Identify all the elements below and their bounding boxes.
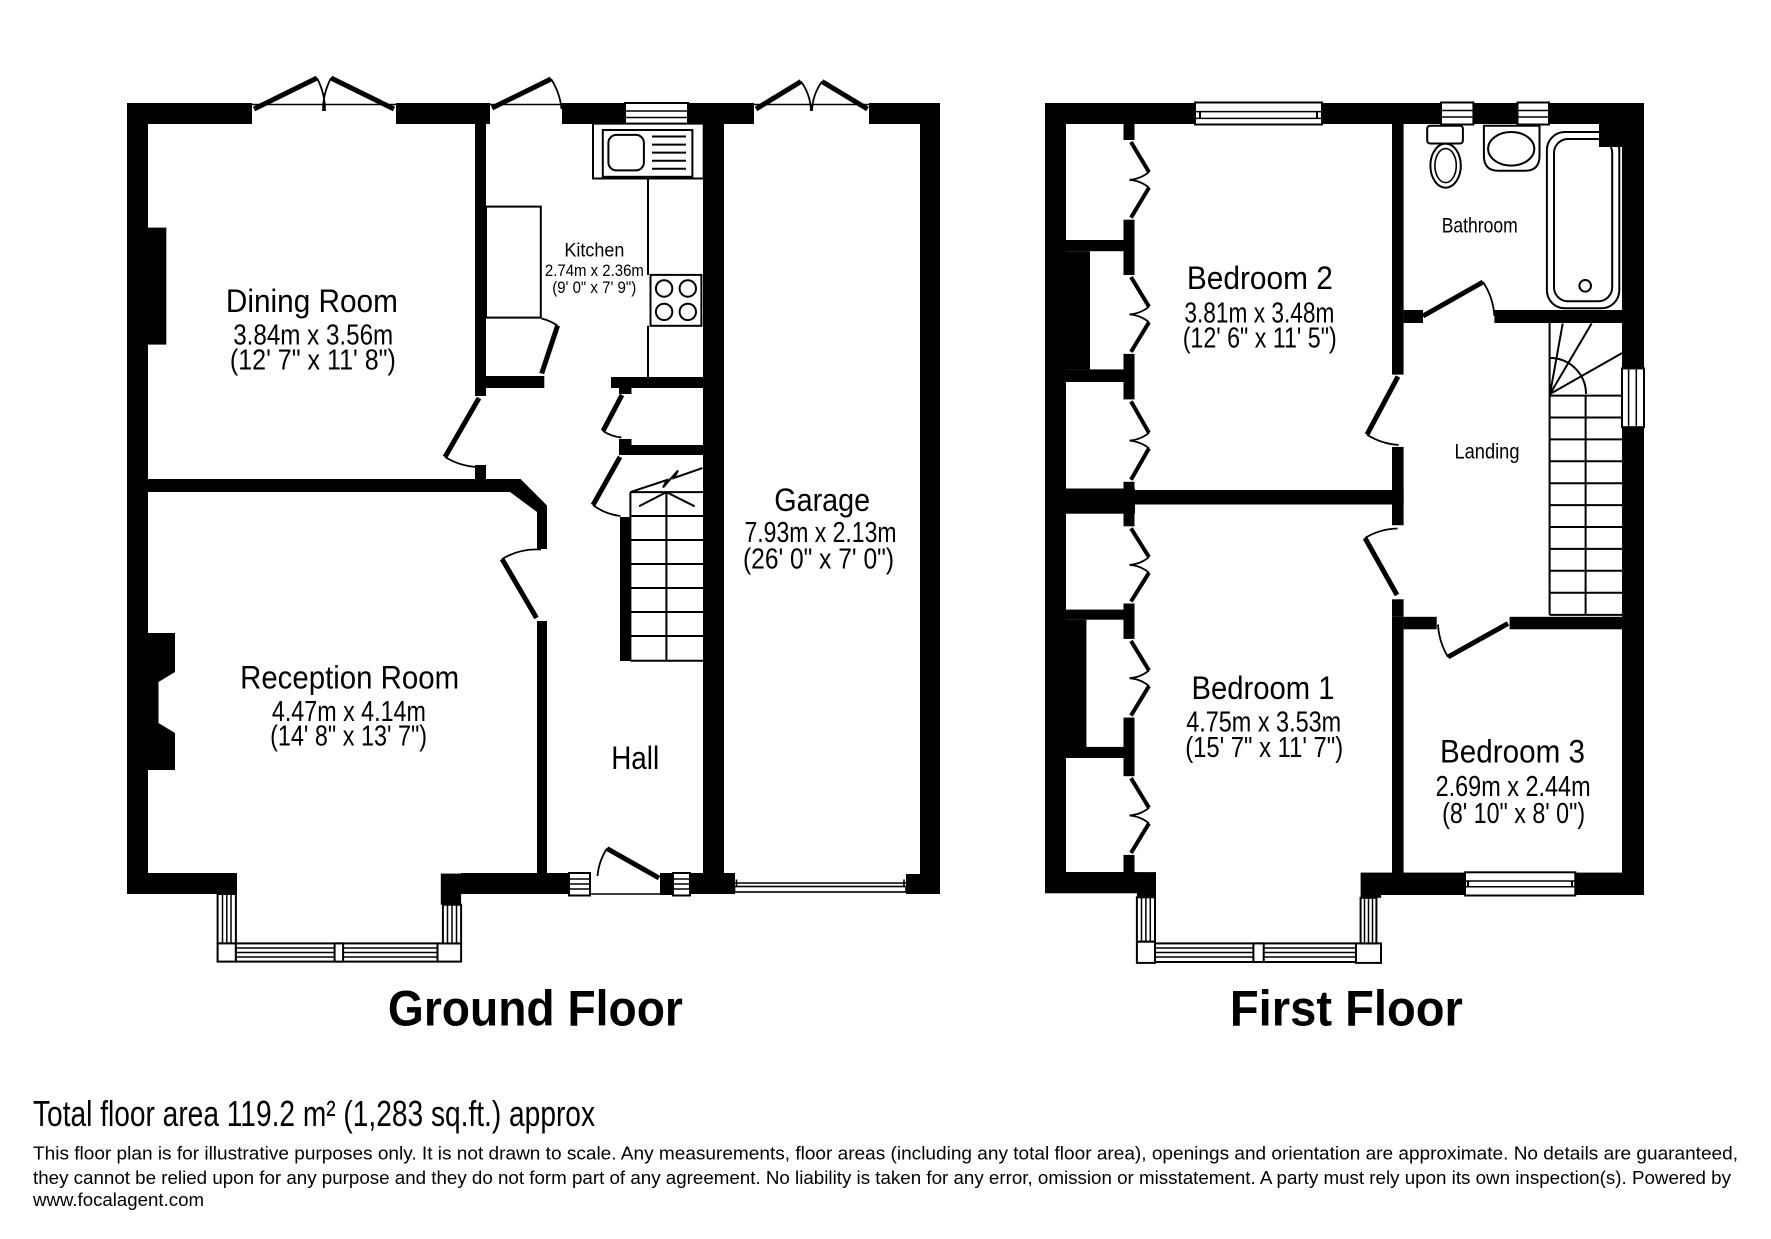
svg-text:First Floor: First Floor (1230, 980, 1463, 1036)
svg-text:Kitchen: Kitchen (564, 240, 624, 261)
svg-text:Total floor area 119.2 m² (1,2: Total floor area 119.2 m² (1,283 sq.ft.)… (33, 1093, 595, 1134)
svg-text:Bathroom: Bathroom (1442, 215, 1518, 238)
svg-text:www.focalagent.com: www.focalagent.com (32, 1190, 204, 1210)
svg-text:Garage: Garage (774, 482, 870, 518)
svg-text:Dining Room: Dining Room (226, 283, 398, 319)
svg-text:Hall: Hall (611, 740, 659, 776)
svg-text:(12' 7" x 11' 8"): (12' 7" x 11' 8") (230, 345, 396, 377)
svg-text:Bedroom 2: Bedroom 2 (1187, 260, 1333, 296)
svg-text:Reception Room: Reception Room (240, 660, 459, 696)
svg-text:Landing: Landing (1455, 441, 1520, 464)
svg-text:(14' 8" x 13' 7"): (14' 8" x 13' 7") (270, 721, 427, 753)
svg-text:(9' 0" x 7' 9"): (9' 0" x 7' 9") (552, 278, 636, 297)
svg-text:This floor plan is for illustr: This floor plan is for illustrative purp… (33, 1144, 1738, 1164)
svg-text:(15' 7" x 11' 7"): (15' 7" x 11' 7") (1185, 732, 1343, 764)
svg-text:(12' 6" x 11' 5"): (12' 6" x 11' 5") (1183, 323, 1337, 355)
svg-text:Bedroom 1: Bedroom 1 (1192, 670, 1335, 706)
svg-text:(26' 0" x 7' 0"): (26' 0" x 7' 0") (743, 543, 894, 575)
svg-text:they cannot be relied upon for: they cannot be relied upon for any purpo… (33, 1168, 1731, 1188)
svg-text:(8' 10" x 8' 0"): (8' 10" x 8' 0") (1442, 798, 1585, 830)
svg-text:Ground Floor: Ground Floor (388, 980, 683, 1036)
svg-text:Bedroom 3: Bedroom 3 (1440, 734, 1585, 770)
